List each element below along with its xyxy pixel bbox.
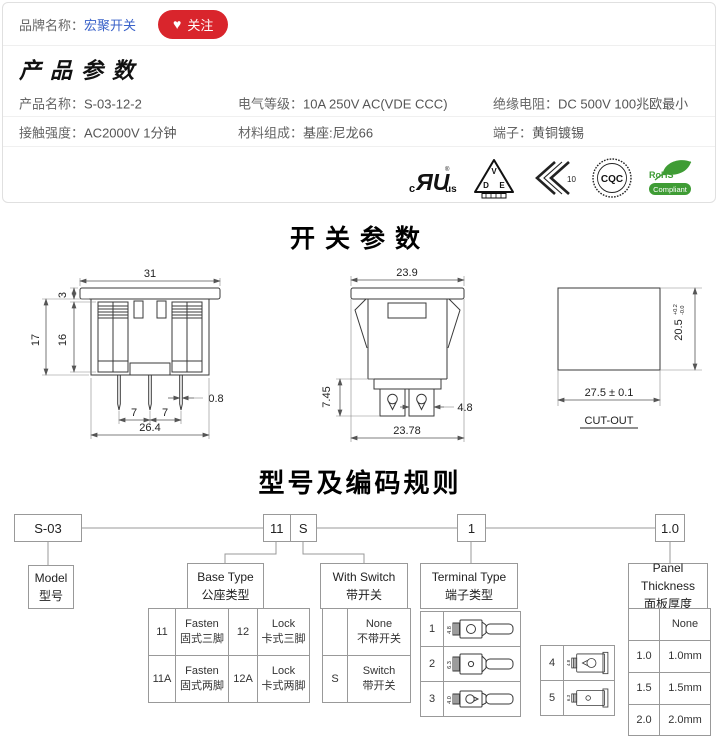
terminal-table-right: 4 4.8 5 6.3 [540,645,615,716]
cell-value: None [660,609,711,641]
svg-text:CUT-OUT: CUT-OUT [585,415,634,427]
cell-desc: None不带开关 [348,609,411,656]
svg-text:3: 3 [57,292,69,298]
svg-text:16: 16 [57,334,69,346]
brand-bar: 品牌名称： 宏聚开关 ♥ 关注 [3,3,715,46]
certification-icons: c ЯU us ® V D E 10 CQC RoHS [407,155,693,201]
enec-icon: 10 [529,157,577,199]
svg-text:4.0: 4.0 [447,696,453,704]
svg-text:7: 7 [131,407,137,419]
vde-icon: V D E [472,157,516,199]
svg-text:-0.0: -0.0 [680,306,686,315]
front-view-drawing: 31 3 16 17 0.8 7 7 26.4 [30,258,260,456]
svg-text:27.5 ± 0.1: 27.5 ± 0.1 [585,387,634,399]
cell-value: 1.5mm [660,673,711,705]
svg-text:E: E [499,181,505,190]
code-box-base-switch: 11 S [263,514,317,542]
svg-text:17: 17 [30,334,42,346]
terminal-drawing-2: 6.3 [444,647,521,682]
svg-text:6.3: 6.3 [566,694,571,701]
product-card: 品牌名称： 宏聚开关 ♥ 关注 产品参数 产品名称：S-03-12-2 电气等级… [2,2,716,203]
param-product-name: 产品名称：S-03-12-2 [19,93,142,112]
cell-desc: Lock卡式两脚 [258,656,310,703]
base-type-table: 11 Fasten固式三脚 12 Lock卡式三脚 11A Fasten固式两脚… [148,608,310,703]
terminal-drawing-5: 6.3 [564,681,615,716]
cell-code: 2 [421,647,444,682]
code-box-panel: 1.0 [655,514,685,542]
cell-code: 5 [541,681,564,716]
svg-text:V: V [491,167,497,176]
svg-text:0.8: 0.8 [208,393,223,405]
svg-text:us: us [445,184,457,195]
coding-rules-title: 型号及编码规则 [0,463,720,500]
cell-value: 1.0mm [660,641,711,673]
follow-label: 关注 [187,15,213,34]
coding-section: S-03 11 S 1 1.0 Model 型号 Base Type 公座类型 … [0,505,720,732]
svg-text:4.8: 4.8 [457,402,472,414]
svg-text:23.9: 23.9 [396,267,417,279]
cell-code: 1.0 [629,641,660,673]
cell-code: 11A [149,656,176,703]
cell-desc: Lock卡式三脚 [258,609,310,656]
cell-desc: Fasten固式两脚 [176,656,229,703]
svg-text:RoHS: RoHS [649,170,674,180]
cell-code: 1 [421,612,444,647]
base-type-header: Base Type 公座类型 [187,563,264,609]
svg-text:7: 7 [162,407,168,419]
switch-params-title: 开关参数 [0,219,720,255]
cell-code: 2.0 [629,705,660,736]
svg-text:c: c [409,183,415,195]
terminal-drawing-3: 4.0 [444,682,521,717]
svg-text:CQC: CQC [601,174,623,185]
svg-text:31: 31 [144,268,156,280]
svg-text:20.5: 20.5 [673,319,685,340]
svg-text:10: 10 [567,175,576,184]
cell-code: 1.5 [629,673,660,705]
code-box-model: S-03 [14,514,82,542]
cell-code [323,609,348,656]
terminal-drawing-4: 4.8 [564,646,615,681]
follow-button[interactable]: ♥ 关注 [158,10,228,39]
panel-thickness-header: Panel Thickness 面板厚度 [628,563,708,609]
svg-text:26.4: 26.4 [139,422,160,434]
cell-code: S [323,656,348,703]
cell-desc: Switch带开关 [348,656,411,703]
cell-code [629,609,660,641]
svg-text:7.45: 7.45 [321,386,333,407]
heart-icon: ♥ [173,17,181,31]
svg-text:+0.2: +0.2 [673,304,679,315]
cqc-icon: CQC [590,157,634,199]
product-params-title: 产品参数 [19,53,143,85]
cell-code: 12 [229,609,258,656]
svg-text:23.78: 23.78 [393,425,421,437]
panel-thickness-table: None 1.0 1.0mm 1.5 1.5mm 2.0 2.0mm [628,608,711,736]
cutout-drawing: 20.5 +0.2 -0.0 27.5 ± 0.1 CUT-OUT [540,268,715,436]
terminal-type-header: Terminal Type 端子类型 [420,563,518,609]
param-contact-strength: 接触强度：AC2000V 1分钟 [19,122,177,141]
param-terminal: 端子：黄铜镀锡 [493,122,584,141]
cell-code: 4 [541,646,564,681]
svg-text:6.3: 6.3 [447,661,453,669]
cell-code: 3 [421,682,444,717]
svg-text:4.8: 4.8 [447,626,453,634]
brand-label: 品牌名称： [19,15,84,34]
param-row-1: 产品名称：S-03-12-2 电气等级：10A 250V AC(VDE CCC)… [3,89,715,117]
param-insulation-resistance: 绝缘电阻：DC 500V 100兆欧最小 [493,93,688,112]
param-material: 材料组成：基座:尼龙66 [238,122,373,141]
with-switch-header: With Switch 带开关 [320,563,408,609]
param-row-2: 接触强度：AC2000V 1分钟 材料组成：基座:尼龙66 端子：黄铜镀锡 [3,117,715,147]
svg-text:D: D [483,181,489,190]
svg-text:®: ® [445,166,450,173]
cell-code: 12A [229,656,258,703]
terminal-table-left: 1 4.8 2 6.3 [420,611,521,717]
rohs-icon: RoHS Compliant [647,157,693,199]
svg-text:4.8: 4.8 [566,659,571,666]
side-view-drawing: 23.9 7.45 4.8 23.78 [316,258,516,456]
code-box-terminal: 1 [457,514,486,542]
ul-icon: c ЯU us ® [407,157,459,199]
cell-value: 2.0mm [660,705,711,736]
cell-code: 11 [149,609,176,656]
with-switch-table: None不带开关 S Switch带开关 [322,608,411,703]
terminal-drawing-1: 4.8 [444,612,521,647]
param-electrical-rating: 电气等级：10A 250V AC(VDE CCC) [238,93,448,112]
cell-desc: Fasten固式三脚 [176,609,229,656]
brand-link[interactable]: 宏聚开关 [84,15,136,34]
model-header: Model 型号 [28,565,74,609]
svg-text:Compliant: Compliant [653,185,688,194]
